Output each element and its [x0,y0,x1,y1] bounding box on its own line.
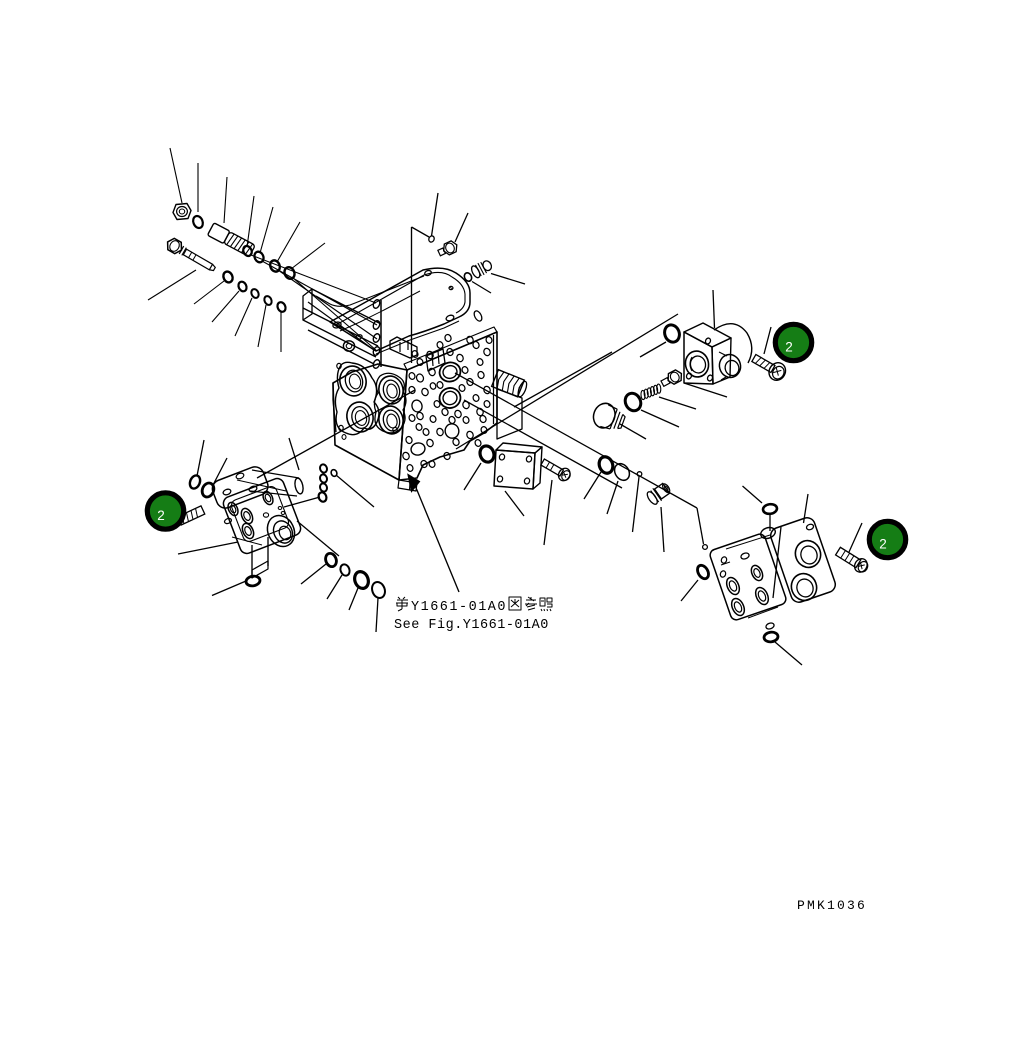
svg-text:PMK1036: PMK1036 [797,898,867,913]
svg-text:See Fig.Y1661-01A0: See Fig.Y1661-01A0 [394,618,549,633]
svg-text:2: 2 [785,340,793,355]
svg-text:2: 2 [879,537,887,552]
svg-text:Y1661-01A0: Y1661-01A0 [411,600,507,615]
svg-text:2: 2 [157,508,165,523]
